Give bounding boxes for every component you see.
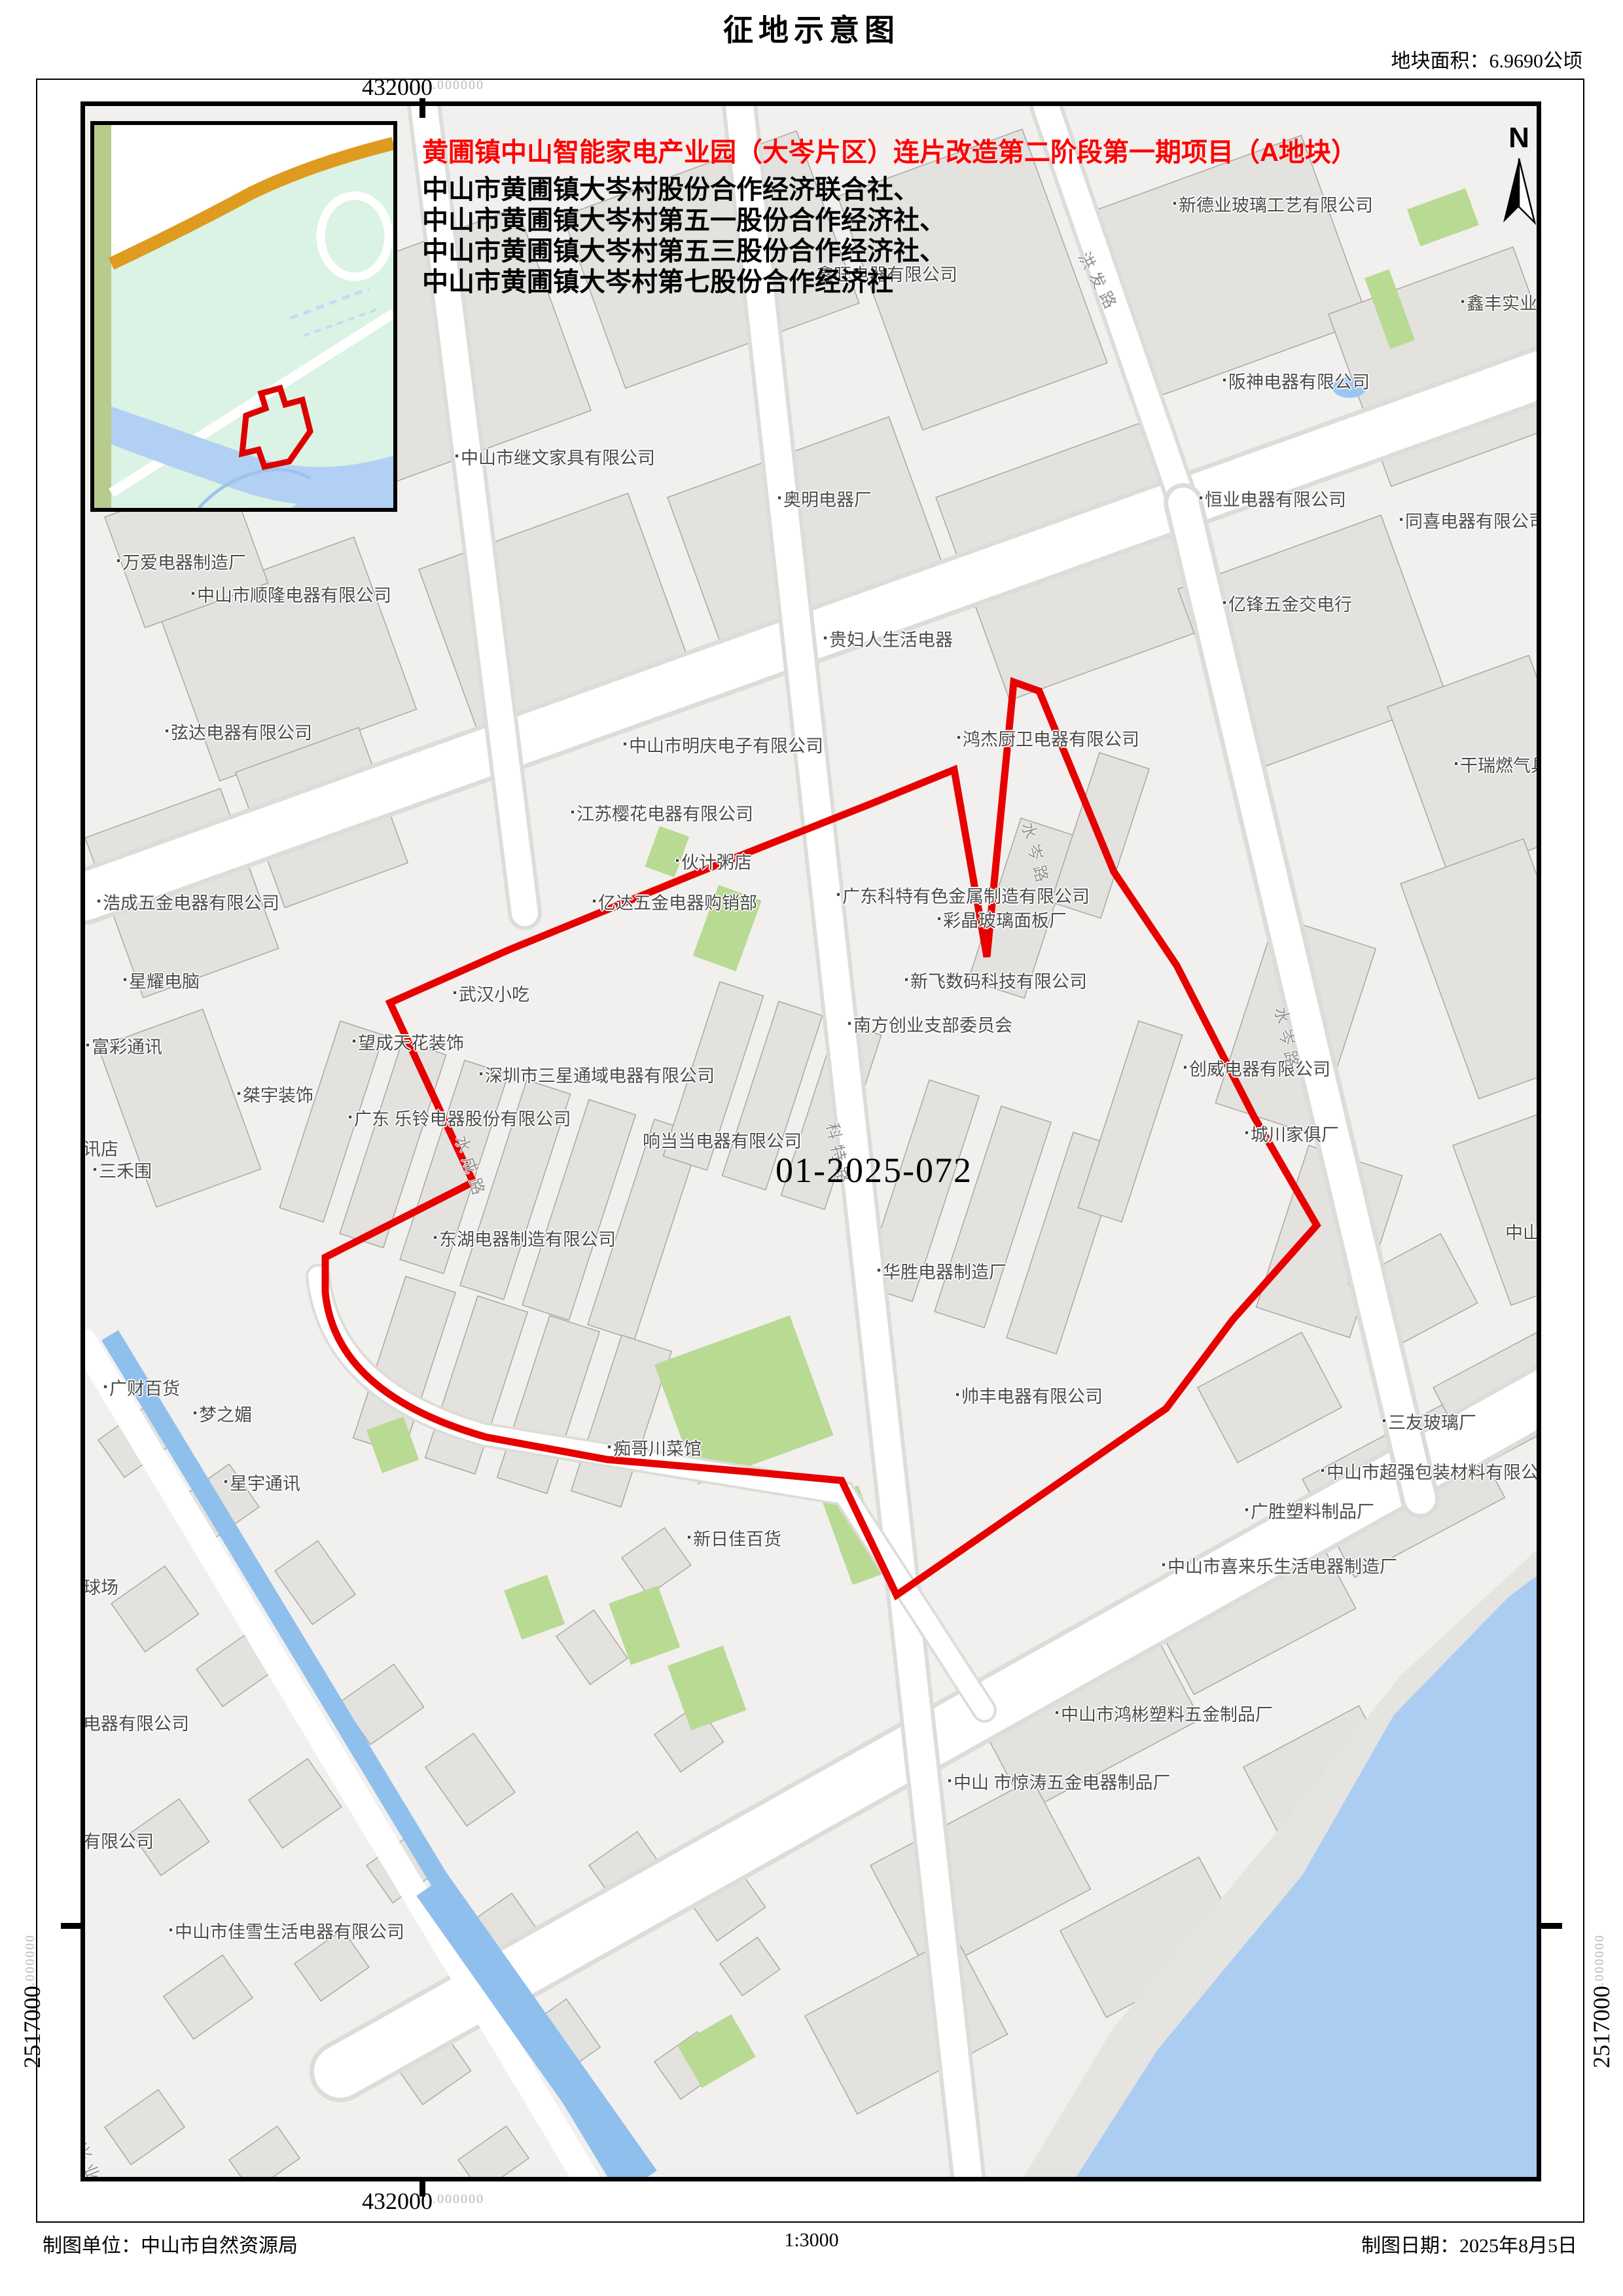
grid-coord-left: 2517000.000000 <box>18 1934 46 2068</box>
tick-right <box>1541 1923 1562 1929</box>
footer: 制图单位：中山市自然资源局 1:3000 制图日期：2025年8月5日 <box>0 2229 1623 2269</box>
poi-label: ▪达园五金加工厂 <box>85 2176 215 2181</box>
parcel-number: 01-2025-072 <box>776 1150 972 1191</box>
map-frame: ▪鑫旺电器有限公司▪中山市继文家具有限公司▪奥明电器厂▪万爱电器制造厂▪中山市顺… <box>80 101 1541 2181</box>
inset-locator-map <box>90 121 397 512</box>
grid-coord-right: 2517000.000000 <box>1588 1934 1615 2068</box>
north-arrow: N <box>1496 122 1541 253</box>
parcel-area-note: 地块面积：6.9690公顷 <box>1391 45 1583 73</box>
footer-date: 制图日期：2025年8月5日 <box>1361 2229 1577 2258</box>
north-label: N <box>1496 122 1541 154</box>
grid-coord-top: 432000.000000 <box>362 73 484 101</box>
page-title: 征地示意图 <box>0 7 1623 50</box>
tick-left <box>61 1923 82 1929</box>
map-sheet: 征地示意图 地块面积：6.9690公顷 <box>0 0 1623 2296</box>
tick-top <box>419 98 425 118</box>
inset-map-graphic <box>94 125 393 508</box>
tick-bottom <box>419 2178 425 2197</box>
north-needle-icon <box>1496 154 1541 233</box>
